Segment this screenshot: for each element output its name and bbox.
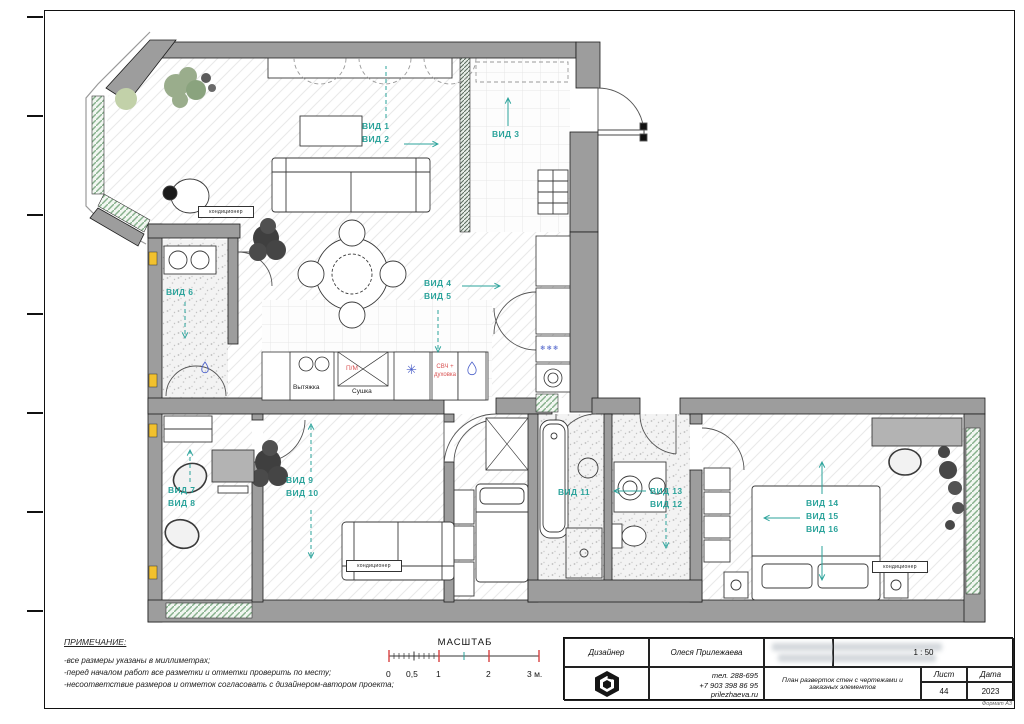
margin-tick xyxy=(27,115,43,117)
sheet-frame xyxy=(44,10,1015,709)
margin-tick xyxy=(27,16,43,18)
margin-tick xyxy=(27,610,43,612)
margin-tick xyxy=(27,313,43,315)
margin-tick xyxy=(27,412,43,414)
margin-tick xyxy=(27,214,43,216)
margin-tick xyxy=(27,511,43,513)
drawing-sheet: ВИД 1ВИД 2 ВИД 3 ВИД 4ВИД 5 ВИД 6 ВИД 7В… xyxy=(0,0,1024,724)
